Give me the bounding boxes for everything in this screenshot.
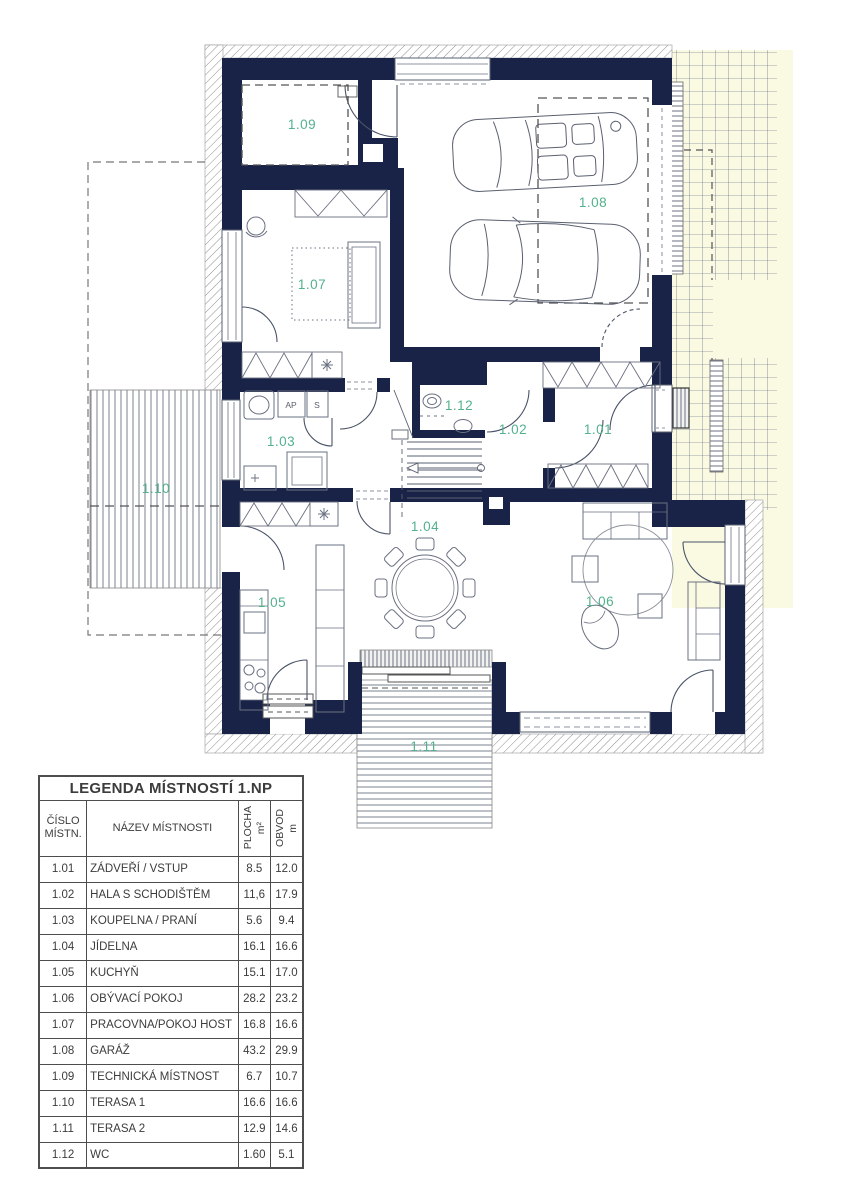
cell-number: 1.09 <box>39 1064 87 1090</box>
car <box>449 215 642 310</box>
bed <box>348 242 380 328</box>
cell-perimeter: 9.4 <box>270 908 303 934</box>
closet <box>295 190 387 217</box>
cell-perimeter: 16.6 <box>270 1012 303 1038</box>
side-table <box>638 594 662 618</box>
room-label: 1.08 <box>579 195 607 210</box>
cell-number: 1.11 <box>39 1116 87 1142</box>
cell-number: 1.08 <box>39 1038 87 1064</box>
table-row: 1.12WC1.605.1 <box>39 1142 303 1168</box>
room-label: 1.09 <box>288 117 316 132</box>
cell-name: WC <box>87 1142 239 1168</box>
room-label: 1.06 <box>586 594 614 609</box>
cell-number: 1.05 <box>39 960 87 986</box>
cell-number: 1.01 <box>39 856 87 882</box>
cell-area: 12.9 <box>238 1116 270 1142</box>
table-row: 1.06OBÝVACÍ POKOJ28.223.2 <box>39 986 303 1012</box>
appliance-label-ap: AP <box>285 400 297 410</box>
cell-perimeter: 17.9 <box>270 882 303 908</box>
stove-burner <box>245 682 253 690</box>
room-label: 1.01 <box>584 422 612 437</box>
cell-perimeter: 5.1 <box>270 1142 303 1168</box>
cell-area: 8.5 <box>238 856 270 882</box>
cell-perimeter: 29.9 <box>270 1038 303 1064</box>
cell-name: PRACOVNA/POKOJ HOST <box>87 1012 239 1038</box>
col-header-name: NÁZEV MÍSTNOSTI <box>87 800 239 856</box>
table-row: 1.09TECHNICKÁ MÍSTNOST6.710.7 <box>39 1064 303 1090</box>
cell-perimeter: 16.6 <box>270 934 303 960</box>
room-label: 1.07 <box>298 277 326 292</box>
stove-burner <box>257 669 265 677</box>
kitchen-door-threshold <box>263 694 313 718</box>
fridge-icon <box>318 508 330 520</box>
table-row: 1.04JÍDELNA16.116.6 <box>39 934 303 960</box>
perimeter-unit: m <box>287 824 299 833</box>
cell-area: 16.6 <box>238 1090 270 1116</box>
cell-perimeter: 10.7 <box>270 1064 303 1090</box>
col-header-number: ČÍSLO MÍSTN. <box>39 800 87 856</box>
cell-name: TECHNICKÁ MÍSTNOST <box>87 1064 239 1090</box>
coffee-table <box>572 556 598 582</box>
cell-perimeter: 16.6 <box>270 1090 303 1116</box>
cell-name: HALA S SCHODIŠTĚM <box>87 882 239 908</box>
cell-name: JÍDELNA <box>87 934 239 960</box>
garage-contents <box>449 98 648 309</box>
col-header-perimeter: OBVODm <box>270 800 303 856</box>
chairs <box>375 538 475 638</box>
cell-name: ZÁDVEŘÍ / VSTUP <box>87 856 239 882</box>
stair-arrow <box>407 463 418 473</box>
table-row: 1.07PRACOVNA/POKOJ HOST16.816.6 <box>39 1012 303 1038</box>
cell-area: 28.2 <box>238 986 270 1012</box>
cell-number: 1.02 <box>39 882 87 908</box>
room-label: 1.11 <box>410 739 437 754</box>
cell-number: 1.10 <box>39 1090 87 1116</box>
island <box>316 545 344 712</box>
table-row: 1.11TERASA 212.914.6 <box>39 1116 303 1142</box>
cell-perimeter: 17.0 <box>270 960 303 986</box>
cell-name: GARÁŽ <box>87 1038 239 1064</box>
walkway-strip <box>710 360 723 472</box>
cell-name: TERASA 1 <box>87 1090 239 1116</box>
shower <box>244 466 276 490</box>
dining-table <box>392 555 458 621</box>
floor-plan: AP S <box>0 0 848 860</box>
cell-perimeter: 14.6 <box>270 1116 303 1142</box>
table-row: 1.03KOUPELNA / PRANÍ5.69.4 <box>39 908 303 934</box>
appliance-label-s: S <box>314 400 320 410</box>
cell-area: 11,6 <box>238 882 270 908</box>
sink <box>244 612 265 633</box>
room-label: 1.10 <box>142 481 170 496</box>
sliding-door-panel <box>362 667 450 674</box>
table-row: 1.02HALA S SCHODIŠTĚM11,617.9 <box>39 882 303 908</box>
cell-name: KUCHYŇ <box>87 960 239 986</box>
cell-number: 1.07 <box>39 1012 87 1038</box>
wall-notch <box>363 144 383 162</box>
stove-burner <box>244 665 254 675</box>
cell-perimeter: 23.2 <box>270 986 303 1012</box>
perimeter-label: OBVOD <box>274 809 286 847</box>
stove-burner <box>255 683 265 693</box>
wall-notch <box>489 497 503 509</box>
washer <box>287 452 327 490</box>
car <box>451 111 639 193</box>
cell-perimeter: 12.0 <box>270 856 303 882</box>
area-unit: m² <box>255 822 267 834</box>
cell-area: 43.2 <box>238 1038 270 1064</box>
sink <box>423 394 441 408</box>
windows <box>222 58 745 734</box>
table-row: 1.08GARÁŽ43.229.9 <box>39 1038 303 1064</box>
room-label: 1.05 <box>258 595 286 610</box>
kitchen-contents <box>240 502 344 712</box>
cell-area: 15.1 <box>238 960 270 986</box>
room-label: 1.04 <box>411 519 439 534</box>
cell-name: KOUPELNA / PRANÍ <box>87 908 239 934</box>
cell-area: 16.8 <box>238 1012 270 1038</box>
cell-name: OBÝVACÍ POKOJ <box>87 986 239 1012</box>
cell-area: 6.7 <box>238 1064 270 1090</box>
room-label: 1.03 <box>267 434 295 449</box>
area-label: PLOCHA <box>242 806 254 849</box>
freezer-icon <box>321 359 333 371</box>
cell-number: 1.06 <box>39 986 87 1012</box>
legend-title: LEGENDA MÍSTNOSTÍ 1.NP <box>39 776 303 800</box>
legend-table: LEGENDA MÍSTNOSTÍ 1.NP ČÍSLO MÍSTN. NÁZE… <box>38 775 304 1169</box>
chair <box>247 217 265 235</box>
room-label: 1.02 <box>499 422 527 437</box>
table-row: 1.01ZÁDVEŘÍ / VSTUP8.512.0 <box>39 856 303 882</box>
col-header-area: PLOCHAm² <box>238 800 270 856</box>
cell-area: 16.1 <box>238 934 270 960</box>
cell-number: 1.03 <box>39 908 87 934</box>
cell-name: TERASA 2 <box>87 1116 239 1142</box>
table-row: 1.10TERASA 116.616.6 <box>39 1090 303 1116</box>
table-row: 1.05KUCHYŇ15.117.0 <box>39 960 303 986</box>
cell-area: 5.6 <box>238 908 270 934</box>
cell-number: 1.12 <box>39 1142 87 1168</box>
dining-contents <box>375 538 475 638</box>
cell-area: 1.60 <box>238 1142 270 1168</box>
room-label: 1.12 <box>445 398 473 413</box>
sliding-door-panel <box>388 675 490 682</box>
doormat <box>673 388 689 428</box>
cell-number: 1.04 <box>39 934 87 960</box>
